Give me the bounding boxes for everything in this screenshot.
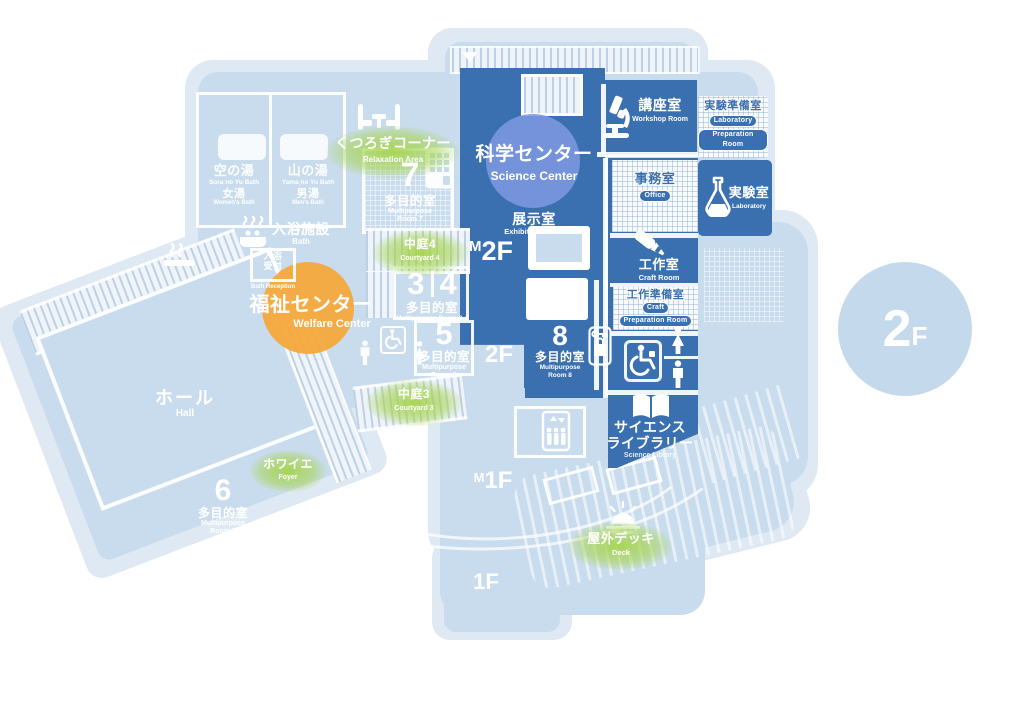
room-name-en: Multipurpose — [422, 364, 466, 372]
room-name-jp: 講座室 — [638, 98, 682, 114]
label-science-library: サイエンス ライブラリー Science Library — [600, 420, 700, 460]
room-name-jp: 入浴施設 — [272, 222, 330, 238]
label-exhibition: 展示室 Exhibition Room — [496, 212, 572, 236]
room-name-jp: サイエンス — [614, 420, 686, 436]
label-room5: 5 多目的室 Multipurpose Room 5 — [412, 318, 476, 380]
label-yama-no-yu: 山の湯 Yama no Yu Bath 男湯 Men's Bath — [272, 164, 344, 207]
label-laboratory: 実験室 Laboratory — [726, 186, 772, 210]
room-name-en: Laboratory — [709, 115, 758, 127]
floor-marker-main: 1F — [484, 468, 512, 495]
room-name-jp: ホール — [155, 388, 215, 408]
center-name-jp: 福祉センター — [250, 294, 373, 316]
wall — [664, 356, 698, 359]
room-name-jp: 多目的室 — [535, 351, 585, 364]
room-name-jp: 展示室 — [512, 212, 556, 228]
floor-marker-m2f: M2F — [458, 236, 524, 266]
label-deck-jp[interactable]: 屋外デッキ — [572, 532, 670, 547]
room-name-en: Office — [639, 190, 670, 202]
room-name-jp: 実験準備室 — [704, 100, 762, 112]
floor-marker-main: 2F — [481, 236, 513, 266]
room-number: 6 — [215, 476, 232, 506]
room-name-en: Craft — [642, 302, 669, 314]
number-divider — [431, 271, 434, 297]
men-toilet-icon — [669, 360, 687, 390]
smoking-icon — [160, 240, 200, 274]
room-name-en: Multipurpose — [388, 208, 432, 216]
room-name-en: Sora no Yu Bath — [209, 179, 259, 186]
room-name-jp: 多目的室 — [406, 301, 458, 315]
elevator-icon — [541, 410, 571, 452]
room-name-jp: くつろぎコーナー — [335, 135, 451, 151]
label-science-en: Science Center — [478, 170, 590, 183]
room-name-en: Room 5 — [431, 372, 457, 380]
floor-badge-number: 2 — [883, 300, 912, 358]
room-name-jp: 工作準備室 — [627, 289, 685, 301]
room-name-jp: 入浴 — [263, 251, 282, 261]
room-name-en: Science Library — [624, 452, 676, 460]
corridor-arrow-icon — [462, 52, 478, 62]
room-number: 3 — [407, 268, 424, 299]
accessible-toilet-icon — [624, 340, 662, 382]
room-name-jp: 屋外デッキ — [587, 531, 655, 546]
wall — [597, 152, 700, 157]
room-name-en: Exhibition Room — [504, 228, 564, 236]
floor-badge[interactable]: 2 F — [858, 292, 952, 366]
room-sub-en: Women's Bath — [213, 200, 254, 207]
room-name-jp: 中庭3 — [398, 387, 430, 401]
label-room7: 7 多目的室 Multipurpose Room 7 — [366, 158, 454, 224]
room-number: 7 — [401, 158, 420, 192]
floor-map-2f: 空の湯 Sora no Yu Bath 女湯 Women's Bath 山の湯 … — [0, 0, 1024, 707]
men-toilet-icon — [357, 340, 373, 367]
room-name-en: Craft Room — [639, 274, 680, 282]
room-name-en: Multipurpose — [540, 364, 581, 371]
label-foyer-en: Foyer — [252, 474, 324, 482]
bath-tub-icon — [236, 214, 270, 250]
room-name-jp: 中庭4 — [404, 237, 436, 251]
room-sub-jp: 男湯 — [297, 188, 320, 200]
label-deck-en: Deck — [572, 549, 670, 557]
label-sora-no-yu: 空の湯 Sora no Yu Bath 女湯 Women's Bath — [198, 164, 270, 207]
label-office: 事務室 Office — [614, 172, 696, 202]
room-number: 8 — [552, 322, 568, 350]
room-name-jp: 多目的室 — [198, 507, 248, 520]
label-hall: ホール Hall — [130, 388, 240, 419]
label-room8: 8 多目的室 Multipurpose Room 8 — [524, 322, 596, 379]
craft-prep-pills: Craft — [642, 302, 669, 314]
label-workshop: 講座室 Workshop Room — [626, 98, 694, 124]
floor-marker-m1f: M1F — [462, 468, 524, 495]
room-name-jp: 工作室 — [639, 258, 680, 273]
women-toilet-icon — [668, 326, 688, 356]
room-name-en: Yama no Yu Bath — [282, 179, 335, 186]
room-name-jp: 事務室 — [635, 172, 676, 187]
room-sub-en: Men's Bath — [292, 200, 324, 207]
label-room34: 3 4 多目的室 Multipurpose Room 3,4 — [392, 268, 472, 322]
label-courtyard3-jp[interactable]: 中庭3 — [368, 388, 460, 401]
room-name-en: Hall — [176, 408, 194, 419]
room-name-en: Workshop Room — [632, 116, 688, 124]
bathtub-yama — [280, 134, 328, 160]
room-name-jp: 空の湯 — [214, 164, 255, 179]
room-name-en: Laboratory — [732, 203, 766, 210]
floor-marker-prefix: M — [474, 471, 485, 486]
floor-marker-prefix: M — [469, 239, 482, 256]
label-foyer-jp[interactable]: ホワイエ — [252, 458, 324, 471]
room-name-en: Bath — [292, 238, 310, 247]
room-name-jp: 山の湯 — [288, 164, 329, 179]
bath-divider-wall — [269, 92, 272, 228]
room-name-jp: 多目的室 — [418, 350, 470, 364]
label-craft-prep: 工作準備室 Craft Preparation Room — [613, 289, 698, 327]
room-name-jp: ライブラリー — [607, 436, 694, 452]
stair-void — [526, 278, 588, 320]
stair-void-inner — [536, 234, 582, 262]
room-numbers: 3 4 — [407, 268, 457, 299]
label-room6: 6 多目的室 Multipurpose Room 6 — [190, 476, 256, 536]
label-craft: 工作室 Craft Room — [624, 258, 694, 282]
label-bath-reception: 入浴 受付 — [250, 251, 296, 271]
floor-badge-suffix: F — [912, 322, 928, 351]
label-courtyard3-en: Courtyard 3 — [368, 405, 460, 413]
room-name-jp: 多目的室 — [384, 194, 436, 208]
room-name-jp: 受付 — [263, 261, 282, 271]
label-welfare-jp[interactable]: 福祉センター — [235, 294, 387, 316]
room-name-jp: ホワイエ — [263, 457, 313, 471]
stair-hatch — [521, 74, 583, 116]
floor-marker-2f: 2F — [476, 342, 522, 369]
room-name-en: Room 8 — [548, 372, 572, 379]
room-name-en: Room 7 — [397, 216, 423, 224]
room-name-en: Room 6 — [210, 528, 236, 536]
floor-marker-1f: 1F — [462, 570, 510, 595]
room-number: 5 — [435, 318, 452, 349]
label-lab-prep: 実験準備室 Laboratory Preparation Room — [698, 100, 768, 151]
room-sub-jp: 女湯 — [223, 188, 246, 200]
label-relaxation-jp[interactable]: くつろぎコーナー — [328, 136, 458, 152]
room-name-jp: 実験室 — [729, 186, 770, 201]
label-bath: 入浴施設 Bath — [266, 222, 336, 247]
room-name-en: Preparation Room — [698, 129, 768, 151]
label-science-jp[interactable]: 科学センター — [458, 144, 610, 165]
bathtub-sora — [218, 134, 266, 160]
room-number: 4 — [440, 268, 457, 299]
label-courtyard4-en: Courtyard 4 — [374, 255, 466, 263]
label-welfare-en: Welfare Center — [277, 318, 387, 330]
label-bath-reception-en: Bath Reception — [240, 284, 306, 291]
center-name-jp: 科学センター — [475, 144, 592, 165]
open-book-icon — [630, 392, 672, 422]
label-courtyard4-jp[interactable]: 中庭4 — [374, 238, 466, 251]
room-name-en: Preparation Room — [619, 315, 693, 327]
wing-grid — [704, 248, 784, 322]
room-name-en: Multipurpose — [201, 520, 245, 528]
